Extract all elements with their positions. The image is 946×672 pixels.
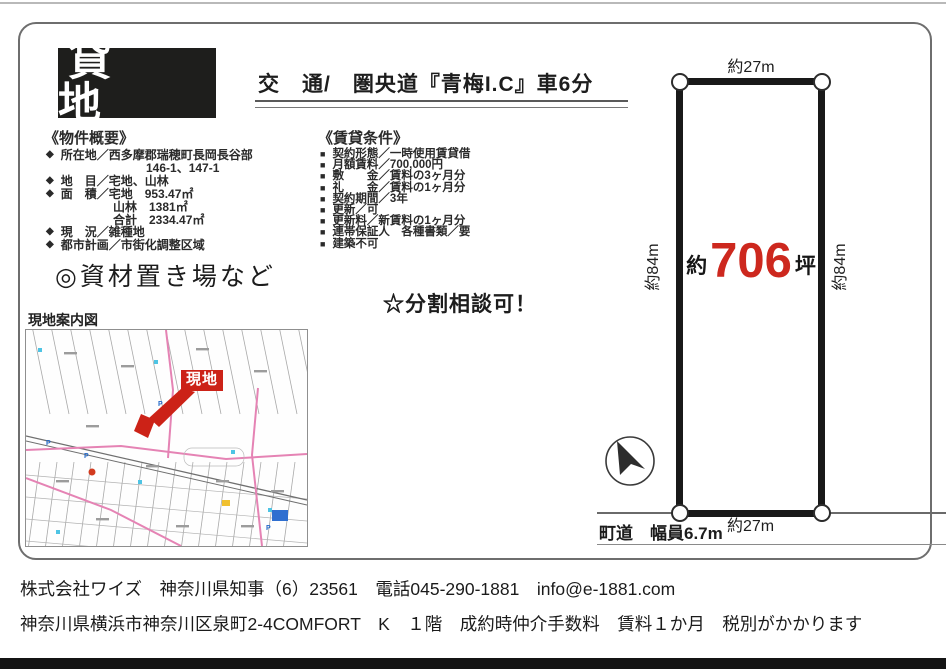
flyer-page: 貸 地 交 通/ 圏央道『青梅I.C』車6分 《物件概要》 ◆ 所在地／西多摩郡…: [0, 0, 946, 672]
square-bullet-icon: ■: [320, 183, 325, 194]
plot-dim-right: 約84m: [826, 237, 850, 297]
condition-text: 敷 金／賃料の3ヶ月分: [332, 171, 465, 182]
svg-text:P: P: [266, 525, 271, 532]
footer-company-line: 株式会社ワイズ 神奈川県知事（6）23561 電話045-290-1881 in…: [20, 576, 675, 601]
footer-address-line: 神奈川県横浜市神奈川区泉町2-4COMFORT K １階 成約時仲介手数料 賃料…: [20, 611, 862, 636]
diamond-bullet-icon: ◆: [46, 239, 54, 252]
overview-item-text: 面 積／宅地 953.47㎡: [61, 188, 194, 201]
overview-item-text: 所在地／西多摩郡瑞穂町長岡長谷部: [61, 149, 253, 162]
road-line-left: [597, 512, 679, 514]
plot-dim-bottom: 約27m: [727, 512, 774, 536]
overview-item-location: ◆ 所在地／西多摩郡瑞穂町長岡長谷部: [46, 149, 253, 162]
bottom-black-bar: [0, 658, 946, 669]
site-marker-badge: 現地: [181, 370, 223, 391]
plot-corner-marker: [813, 504, 831, 522]
condition-item: ■建築不可: [320, 239, 470, 250]
title-banner: 貸 地: [58, 48, 216, 118]
overview-item-text: 地 目／宅地、山林: [61, 175, 169, 188]
usage-note: ◎資材置き場など: [55, 257, 276, 293]
svg-text:P: P: [46, 440, 51, 447]
land-plot-outline: [676, 78, 825, 517]
overview-heading: 《物件概要》: [44, 127, 134, 148]
diamond-bullet-icon: ◆: [46, 149, 54, 162]
overview-item-landcat: ◆ 地 目／宅地、山林: [46, 175, 253, 188]
square-bullet-icon: ■: [320, 216, 325, 227]
plot-area-label: 約 706 坪: [677, 238, 825, 285]
transport-line: 交 通/ 圏央道『青梅I.C』車6分: [258, 68, 593, 98]
road-label: 町道 幅員6.7m: [599, 519, 723, 544]
area-value: 706: [710, 238, 792, 285]
overview-item-area-sub: 山林 1381㎡: [113, 201, 253, 214]
map-title: 現地案内図: [28, 310, 98, 330]
square-bullet-icon: ■: [320, 149, 325, 160]
plot-dim-left: 約84m: [639, 237, 663, 297]
overview-item-area: ◆ 面 積／宅地 953.47㎡: [46, 188, 253, 201]
diamond-bullet-icon: ◆: [46, 188, 54, 201]
location-map: PPPP 現地: [25, 329, 308, 547]
square-bullet-icon: ■: [320, 227, 325, 238]
map-drawing: PPPP: [26, 330, 307, 546]
title-banner-label: 貸 地: [58, 40, 216, 126]
square-bullet-icon: ■: [320, 239, 325, 250]
property-overview-list: ◆ 所在地／西多摩郡瑞穂町長岡長谷部 146-1、147-1 ◆ 地 目／宅地、…: [46, 149, 253, 252]
split-negotiable-note: ☆分割相談可！: [383, 288, 537, 318]
diamond-bullet-icon: ◆: [46, 226, 54, 239]
square-bullet-icon: ■: [320, 194, 325, 205]
area-prefix: 約: [686, 250, 707, 285]
scan-edge-line: [0, 2, 946, 4]
square-bullet-icon: ■: [320, 171, 325, 182]
rental-conditions-list: ■契約形態／一時使用賃貸借 ■月額賃料／700,000円 ■敷 金／賃料の3ヶ月…: [320, 149, 470, 250]
condition-item: ■連帯保証人 各種書類／要: [320, 227, 470, 238]
condition-text: 連帯保証人 各種書類／要: [332, 227, 470, 238]
plot-corner-marker: [813, 73, 831, 91]
square-bullet-icon: ■: [320, 160, 325, 171]
condition-item: ■敷 金／賃料の3ヶ月分: [320, 171, 470, 182]
overview-item-location-sub: 146-1、147-1: [146, 162, 253, 175]
road-line-lower: [597, 544, 946, 545]
conditions-heading: 《賃貸条件》: [318, 127, 408, 148]
overview-item-cityplan: ◆ 都市計画／市街化調整区域: [46, 239, 253, 252]
plot-dim-top: 約27m: [721, 53, 781, 77]
north-compass-icon: [603, 434, 657, 488]
road-line-right: [823, 512, 946, 514]
condition-text: 建築不可: [332, 239, 378, 250]
svg-text:P: P: [84, 453, 89, 460]
plot-corner-marker: [671, 73, 689, 91]
square-bullet-icon: ■: [320, 205, 325, 216]
overview-item-text: 都市計画／市街化調整区域: [61, 239, 205, 252]
transport-underline: [255, 100, 628, 108]
area-unit: 坪: [795, 250, 816, 285]
diamond-bullet-icon: ◆: [46, 175, 54, 188]
